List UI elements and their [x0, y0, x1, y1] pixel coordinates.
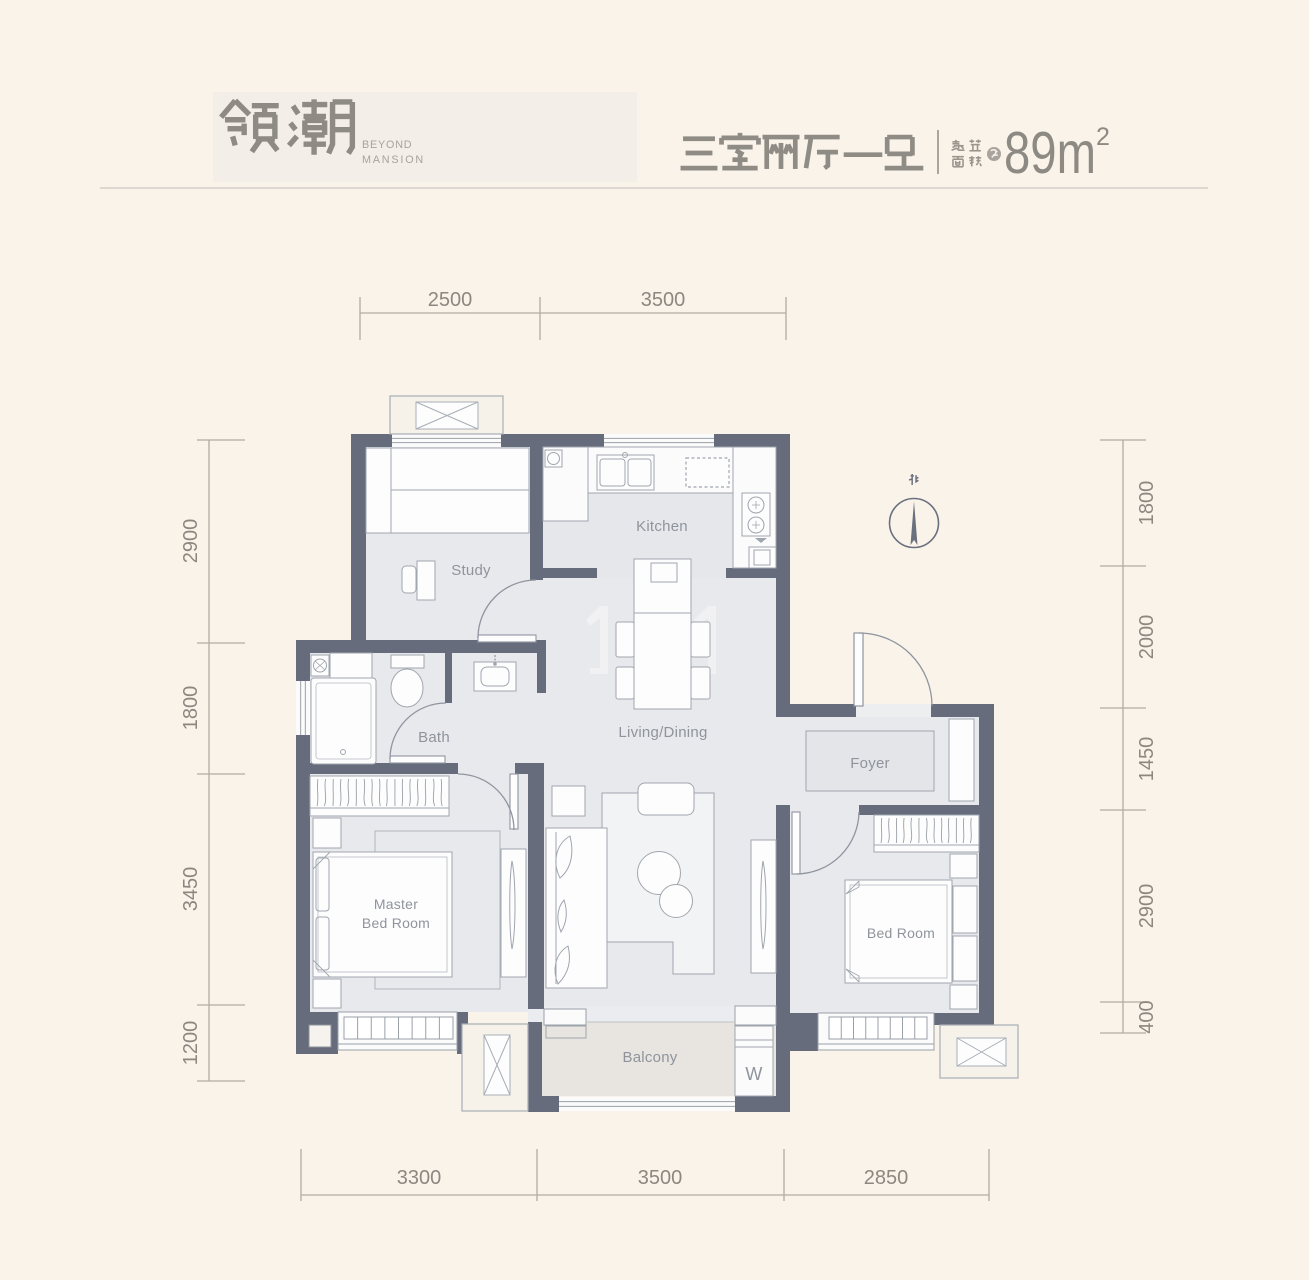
svg-text:2500: 2500	[428, 289, 473, 311]
svg-text:1200: 1200	[180, 1021, 202, 1066]
svg-text:Living/Dining: Living/Dining	[618, 724, 707, 741]
svg-text:2: 2	[1096, 123, 1110, 151]
svg-text:Kitchen: Kitchen	[636, 518, 688, 535]
svg-text:Bed Room: Bed Room	[867, 925, 935, 941]
svg-text:2000: 2000	[1136, 615, 1158, 660]
svg-text:3500: 3500	[641, 289, 686, 311]
svg-text:1800: 1800	[180, 686, 202, 731]
svg-text:3500: 3500	[638, 1167, 683, 1189]
svg-text:3450: 3450	[180, 867, 202, 912]
svg-text:MANSION: MANSION	[362, 154, 425, 166]
svg-text:Master: Master	[374, 896, 418, 912]
svg-text:1450: 1450	[1136, 737, 1158, 782]
svg-text:2900: 2900	[1136, 884, 1158, 929]
svg-text:2850: 2850	[864, 1167, 909, 1189]
svg-text:89m: 89m	[1004, 120, 1096, 186]
svg-text:Balcony: Balcony	[622, 1049, 677, 1066]
svg-text:BEYOND: BEYOND	[362, 139, 412, 151]
svg-text:Bed Room: Bed Room	[362, 915, 430, 931]
svg-text:Foyer: Foyer	[850, 755, 890, 772]
svg-text:3300: 3300	[397, 1167, 442, 1189]
svg-text:1800: 1800	[1136, 481, 1158, 526]
svg-text:Bath: Bath	[418, 729, 450, 746]
svg-text:W: W	[745, 1064, 762, 1084]
svg-text:2900: 2900	[180, 519, 202, 564]
svg-text:400: 400	[1136, 1000, 1158, 1033]
svg-text:Study: Study	[451, 562, 491, 579]
